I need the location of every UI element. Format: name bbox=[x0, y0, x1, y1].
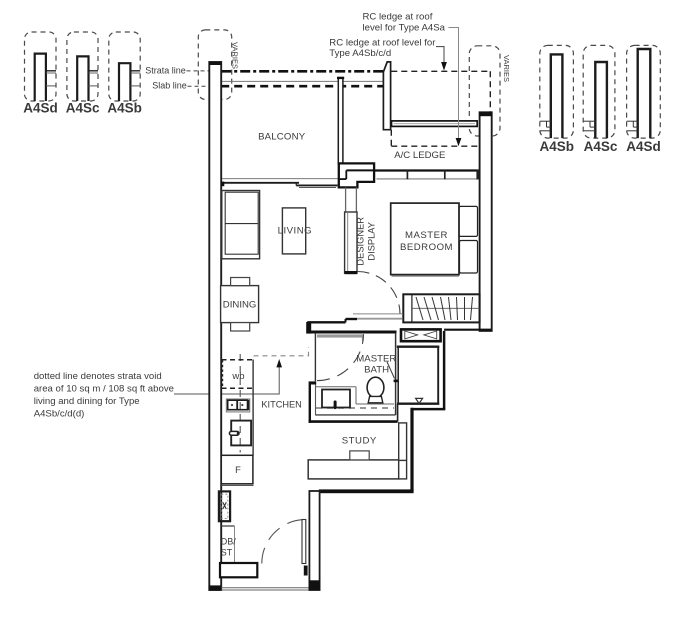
svg-text:A4Sc: A4Sc bbox=[66, 101, 100, 116]
svg-text:F: F bbox=[235, 465, 241, 475]
svg-text:BEDROOM: BEDROOM bbox=[400, 242, 453, 253]
svg-text:Slab line: Slab line bbox=[152, 81, 187, 91]
svg-text:DISPLAY: DISPLAY bbox=[366, 222, 376, 261]
svg-text:MASTER: MASTER bbox=[405, 230, 448, 241]
svg-text:LIVING: LIVING bbox=[278, 225, 312, 236]
svg-text:DESIGNER: DESIGNER bbox=[355, 217, 365, 266]
svg-text:wb: wb bbox=[231, 371, 244, 382]
svg-text:ST: ST bbox=[221, 548, 233, 558]
svg-text:A4Sb/c/d(d): A4Sb/c/d(d) bbox=[34, 409, 85, 420]
svg-text:DINING: DINING bbox=[223, 299, 257, 310]
svg-text:A4Sd: A4Sd bbox=[23, 101, 58, 116]
svg-text:BALCONY: BALCONY bbox=[258, 132, 306, 143]
svg-text:Strata line: Strata line bbox=[145, 66, 186, 76]
svg-text:A4Sc: A4Sc bbox=[584, 139, 618, 154]
svg-text:Type A4Sb/c/d: Type A4Sb/c/d bbox=[329, 48, 391, 59]
svg-text:KITCHEN: KITCHEN bbox=[261, 400, 301, 410]
svg-text:A/C LEDGE: A/C LEDGE bbox=[394, 150, 445, 161]
svg-text:STUDY: STUDY bbox=[342, 435, 377, 446]
svg-text:VARIES: VARIES bbox=[230, 42, 239, 69]
svg-text:DB/: DB/ bbox=[221, 537, 237, 547]
svg-text:living and dining for Type: living and dining for Type bbox=[34, 396, 140, 407]
svg-text:area of 10 sq m / 108 sq ft ab: area of 10 sq m / 108 sq ft above bbox=[34, 384, 174, 395]
svg-text:A4Sb: A4Sb bbox=[540, 139, 575, 154]
svg-text:RC ledge at roof: RC ledge at roof bbox=[363, 12, 433, 23]
svg-text:A4Sd: A4Sd bbox=[626, 139, 661, 154]
svg-text:MASTER: MASTER bbox=[356, 354, 396, 365]
svg-text:RC ledge at roof level for: RC ledge at roof level for bbox=[329, 37, 436, 48]
svg-text:A4Sb: A4Sb bbox=[107, 101, 142, 116]
svg-text:dotted line denotes strata voi: dotted line denotes strata void bbox=[34, 371, 162, 382]
svg-text:BATH: BATH bbox=[364, 364, 389, 375]
svg-text:level for Type A4Sa: level for Type A4Sa bbox=[363, 23, 446, 34]
svg-text:VARIES: VARIES bbox=[502, 55, 511, 82]
